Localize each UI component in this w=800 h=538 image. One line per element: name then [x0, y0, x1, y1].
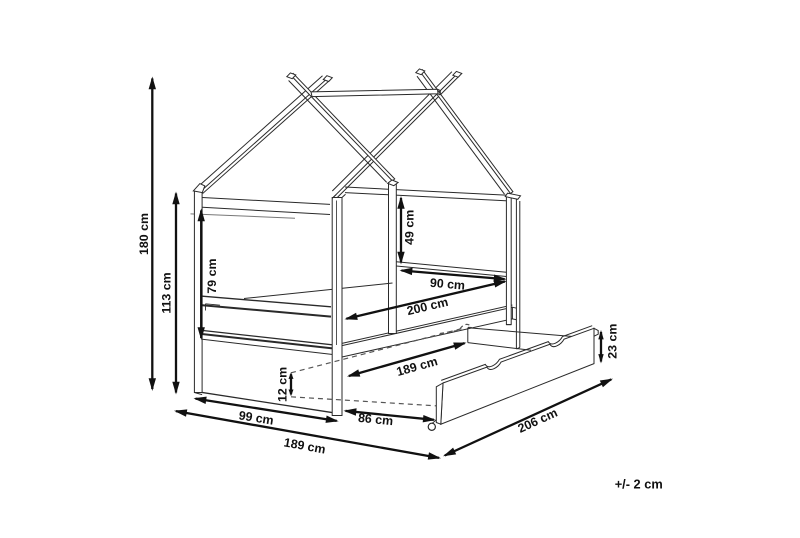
svg-text:+/- 2 cm: +/- 2 cm [615, 477, 663, 492]
svg-text:113 cm: 113 cm [160, 272, 174, 313]
svg-text:180 cm: 180 cm [137, 213, 151, 255]
svg-text:79 cm: 79 cm [205, 258, 219, 293]
svg-text:12 cm: 12 cm [275, 367, 289, 402]
svg-text:49 cm: 49 cm [402, 210, 416, 245]
svg-text:90 cm: 90 cm [429, 276, 465, 293]
svg-text:23 cm: 23 cm [605, 324, 619, 359]
